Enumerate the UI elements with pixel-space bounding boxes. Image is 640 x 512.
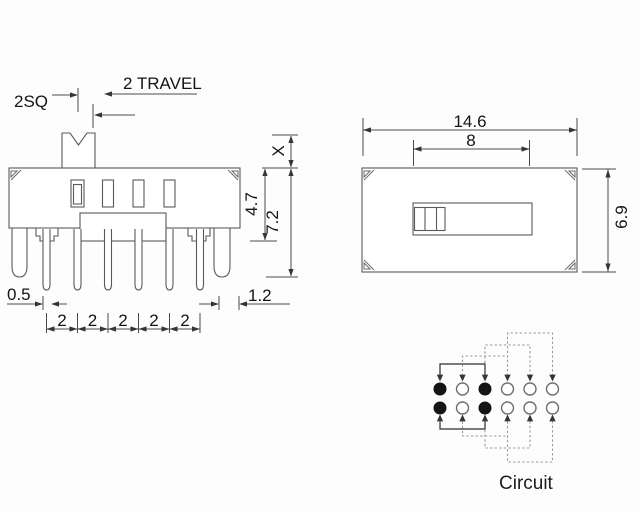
- dim-label-pitch: 2: [180, 311, 189, 330]
- terminal-open: [457, 383, 469, 395]
- dim-label-pitch: 2: [118, 311, 127, 330]
- circuit-diagram: Circuit: [434, 333, 559, 494]
- circuit-bottom-links: [437, 415, 556, 463]
- top-view: 14.6 8 6.9: [362, 112, 631, 272]
- dim-label-total-height: 7.2: [263, 210, 282, 234]
- circuit-terminals: [434, 383, 559, 414]
- terminal-open: [502, 383, 514, 395]
- engineering-drawing-page: 2SQ 2 TRAVEL X 4.7: [0, 0, 640, 512]
- pin: [105, 229, 112, 290]
- terminal-open: [457, 402, 469, 414]
- terminal-open: [502, 402, 514, 414]
- contact-window: [74, 185, 82, 205]
- dim-label-pitch: 2: [57, 311, 66, 330]
- front-view: 2SQ 2 TRAVEL X 4.7: [7, 74, 298, 333]
- dim-label-body-height: 4.7: [242, 192, 261, 216]
- dim-label-width: 14.6: [453, 112, 486, 131]
- dim-label-slot-travel: 8: [466, 131, 475, 150]
- dim-label-pitch: 2: [149, 311, 158, 330]
- dim-label-pin-width: 0.5: [7, 285, 31, 304]
- base-block: [80, 213, 166, 241]
- terminal-filled: [434, 402, 446, 414]
- terminal-filled: [479, 402, 491, 414]
- terminal-open: [524, 402, 536, 414]
- terminal-open: [547, 383, 559, 395]
- terminal-filled: [479, 383, 491, 395]
- technical-drawing-canvas: 2SQ 2 TRAVEL X 4.7: [0, 0, 640, 512]
- pin: [43, 229, 50, 290]
- dim-label-knob-height: X: [269, 145, 288, 156]
- dim-label-depth: 6.9: [612, 205, 631, 229]
- window-slot: [103, 180, 114, 207]
- pin: [74, 229, 81, 290]
- mounting-leg-right: [214, 229, 230, 278]
- pin: [197, 229, 204, 290]
- slide-knob-front: [62, 133, 95, 168]
- window-slot: [133, 180, 144, 207]
- circuit-top-links: [437, 333, 556, 382]
- terminal-open: [524, 383, 536, 395]
- dim-label-knob-square: 2SQ: [14, 92, 48, 111]
- dim-label-edge-offset: 1.2: [248, 286, 272, 305]
- mounting-leg-left: [12, 229, 27, 278]
- pin: [135, 229, 142, 290]
- dim-label-travel: 2 TRAVEL: [123, 74, 202, 93]
- pin-pitch-dimension: 2 2 2 2 2: [47, 311, 201, 333]
- circuit-label: Circuit: [499, 473, 554, 494]
- dim-label-pitch: 2: [88, 311, 97, 330]
- terminal-open: [547, 402, 559, 414]
- pin: [166, 229, 173, 290]
- window-slot: [164, 180, 175, 207]
- terminal-filled: [434, 383, 446, 395]
